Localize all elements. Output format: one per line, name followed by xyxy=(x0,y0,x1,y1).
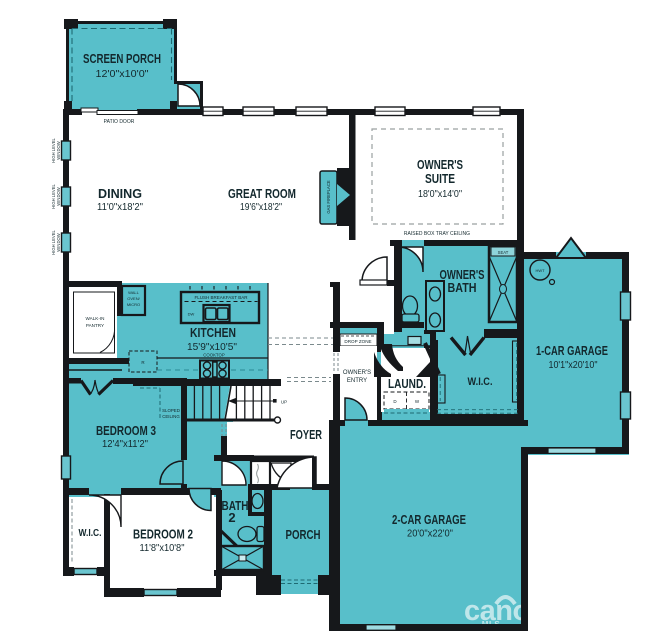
svg-text:GREAT ROOM: GREAT ROOM xyxy=(228,186,296,201)
svg-text:DINING: DINING xyxy=(98,186,142,201)
svg-text:15'9"x10'5": 15'9"x10'5" xyxy=(187,341,237,353)
svg-text:2: 2 xyxy=(228,510,235,525)
svg-text:10'1"x20'10": 10'1"x20'10" xyxy=(549,359,598,371)
svg-text:12'0"x10'0": 12'0"x10'0" xyxy=(96,68,149,80)
svg-text:SUITE: SUITE xyxy=(425,171,455,186)
svg-text:11'0"x18'2": 11'0"x18'2" xyxy=(97,201,143,213)
svg-text:BEDROOM 3: BEDROOM 3 xyxy=(96,423,156,438)
svg-text:KITCHEN: KITCHEN xyxy=(190,325,236,340)
svg-text:18'0"x14'0": 18'0"x14'0" xyxy=(418,188,462,200)
svg-text:1-CAR GARAGE: 1-CAR GARAGE xyxy=(536,343,608,358)
svg-text:SLOPEDCEILING: SLOPEDCEILING xyxy=(162,408,180,419)
svg-text:WALLOVEN/MICRO: WALLOVEN/MICRO xyxy=(127,290,141,307)
svg-text:W.I.C.: W.I.C. xyxy=(79,528,102,539)
svg-text:COOKTOP: COOKTOP xyxy=(203,353,225,358)
svg-text:PORCH: PORCH xyxy=(286,527,321,542)
svg-text:2-CAR GARAGE: 2-CAR GARAGE xyxy=(392,512,466,527)
svg-text:DROP ZONE: DROP ZONE xyxy=(344,339,371,344)
svg-text:FOYER: FOYER xyxy=(290,427,322,442)
svg-text:W.I.C.: W.I.C. xyxy=(468,376,493,388)
svg-text:SEAT: SEAT xyxy=(498,250,509,255)
svg-text:BEDROOM 2: BEDROOM 2 xyxy=(133,527,193,542)
svg-text:12'4"x11'2": 12'4"x11'2" xyxy=(102,438,148,450)
svg-text:11'8"x10'8": 11'8"x10'8" xyxy=(140,542,185,554)
svg-text:PATIO DOOR: PATIO DOOR xyxy=(104,119,135,125)
svg-text:LAUND.: LAUND. xyxy=(388,376,426,391)
svg-text:RAISED BOX TRAY CEILING: RAISED BOX TRAY CEILING xyxy=(404,231,470,237)
svg-text:OWNER'S: OWNER'S xyxy=(417,157,463,172)
svg-text:GAS FIREPLACE: GAS FIREPLACE xyxy=(326,180,331,213)
svg-text:FLUSH BREAKFAST BAR: FLUSH BREAKFAST BAR xyxy=(195,295,249,300)
svg-text:DW: DW xyxy=(188,312,195,317)
svg-text:SCREEN PORCH: SCREEN PORCH xyxy=(83,51,161,66)
svg-text:HWT: HWT xyxy=(535,268,545,273)
svg-text:BATH: BATH xyxy=(448,280,477,295)
svg-text:UP: UP xyxy=(281,400,287,405)
svg-text:20'0"x22'0": 20'0"x22'0" xyxy=(407,528,453,540)
svg-text:19'6"x18'2": 19'6"x18'2" xyxy=(240,201,282,213)
